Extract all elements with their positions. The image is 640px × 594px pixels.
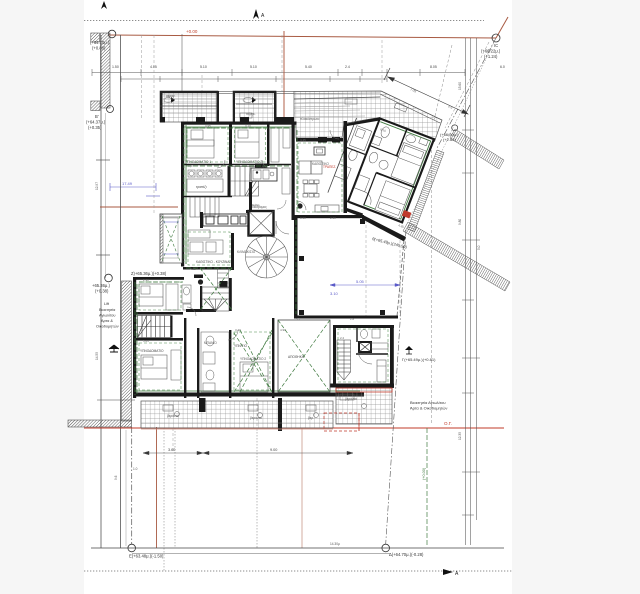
svg-text:5.2: 5.2 <box>296 317 301 321</box>
svg-text:ΑΠΟΘΗΚΗ: ΑΠΟΘΗΚΗ <box>288 355 305 359</box>
svg-text:4.05: 4.05 <box>150 65 157 69</box>
svg-text:Άρτα & Οικοδομητών: Άρτα & Οικοδομητών <box>410 406 447 411</box>
svg-text:ΚΑΘΙΣΤΙΚΟ - ΚΟΥΖΙΝΑ: ΚΑΘΙΣΤΙΚΟ - ΚΟΥΖΙΝΑ <box>196 260 230 264</box>
svg-text:15.60: 15.60 <box>458 82 462 90</box>
svg-text:Βιοκτησία Αγιωλίτου: Βιοκτησία Αγιωλίτου <box>410 400 446 405</box>
svg-text:Οικοδομητών: Οικοδομητών <box>96 325 119 329</box>
svg-text:2.90: 2.90 <box>143 278 149 282</box>
svg-text:17.49: 17.49 <box>122 181 133 186</box>
svg-text:3.10: 3.10 <box>330 291 339 296</box>
svg-text:Δ(+64.70μ.)(-0.28): Δ(+64.70μ.)(-0.28) <box>389 552 424 557</box>
svg-text:2.4: 2.4 <box>345 65 350 69</box>
svg-text:διάδρομος: διάδρομος <box>252 205 267 209</box>
svg-text:τραπέζι: τραπέζι <box>196 185 207 189</box>
svg-text:4.45: 4.45 <box>300 138 306 142</box>
svg-text:Lift: Lift <box>104 302 110 306</box>
svg-text:Γ(+65.49μ.)(+0.81): Γ(+65.49μ.)(+0.81) <box>402 357 436 362</box>
svg-text:2.2: 2.2 <box>340 336 345 340</box>
svg-text:ΥΠΝΟΔΩΜΑΤΙΟ 2: ΥΠΝΟΔΩΜΑΤΙΟ 2 <box>240 357 266 361</box>
svg-text:ΜΠΑΝΙΟ: ΜΠΑΝΙΟ <box>204 341 217 345</box>
svg-text:πλακόστρωτο: πλακόστρωτο <box>300 117 320 121</box>
svg-text:9.80: 9.80 <box>458 219 462 225</box>
svg-text:4.35: 4.35 <box>190 267 196 271</box>
svg-text:B': B' <box>95 114 99 119</box>
svg-text:4.90: 4.90 <box>280 328 286 332</box>
svg-text:Αγιωλίτου: Αγιωλίτου <box>99 314 115 318</box>
svg-text:(+0.35): (+0.35) <box>88 125 102 130</box>
svg-text:1.0: 1.0 <box>133 467 138 471</box>
svg-text:A: A <box>261 13 265 19</box>
svg-text:Βιοκτησία: Βιοκτησία <box>99 308 116 312</box>
svg-text:12.97: 12.97 <box>95 182 99 190</box>
svg-text:14.30μ: 14.30μ <box>330 542 340 546</box>
svg-text:3.60: 3.60 <box>168 448 175 452</box>
svg-text:(+0.00): (+0.00) <box>422 467 426 480</box>
svg-text:βερ.: βερ. <box>308 416 314 420</box>
svg-text:1.50: 1.50 <box>112 65 119 69</box>
svg-text:ΚΛΙΜΑΚ/ΣΙΟ: ΚΛΙΜΑΚ/ΣΙΟ <box>237 250 256 254</box>
svg-text:(+66/22μ.): (+66/22μ.) <box>481 49 501 54</box>
svg-text:3.95: 3.95 <box>205 124 211 128</box>
svg-text:3.10: 3.10 <box>245 124 251 128</box>
svg-text:Z)+65.36μ.)(+0.38): Z)+65.36μ.)(+0.38) <box>131 271 167 276</box>
svg-text:(+0.38): (+0.38) <box>95 289 109 294</box>
svg-text:6.0: 6.0 <box>500 65 505 69</box>
svg-text:4.35: 4.35 <box>398 223 405 229</box>
svg-text:14.55: 14.55 <box>95 352 99 360</box>
svg-text:E(+63.48μ.)(-1.50): E(+63.48μ.)(-1.50) <box>129 554 164 559</box>
svg-text:πέργκ.: πέργκ. <box>246 112 256 116</box>
svg-text:(+64.37μ.): (+64.37μ.) <box>86 120 106 125</box>
svg-text:8.05: 8.05 <box>430 65 437 69</box>
svg-text:αεραγ.: αεραγ. <box>166 94 176 98</box>
svg-text:5.10: 5.10 <box>250 65 257 69</box>
svg-text:3.65: 3.65 <box>143 339 149 343</box>
svg-text:12.35: 12.35 <box>458 432 462 440</box>
svg-text:+65.36μ.): +65.36μ.) <box>92 283 111 288</box>
svg-text:5.05: 5.05 <box>356 279 365 284</box>
svg-text:IC: IC <box>494 43 498 48</box>
svg-text:2.30: 2.30 <box>330 216 336 220</box>
svg-text:βεράντα: βεράντα <box>167 414 179 418</box>
svg-text:2.3: 2.3 <box>448 104 454 110</box>
svg-text:5.0: 5.0 <box>477 245 481 250</box>
svg-text:(+2.62): (+2.62) <box>443 137 456 142</box>
svg-text:βεράντα: βεράντα <box>250 416 262 420</box>
svg-text:Ο.Γ.: Ο.Γ. <box>444 421 452 426</box>
svg-text:ΥΠΝΟΔΩΜΑΤΙΟ: ΥΠΝΟΔΩΜΑΤΙΟ <box>140 349 164 353</box>
svg-text:ΥΠΝ/ΤΙΟ: ΥΠΝ/ΤΙΟ <box>234 344 247 348</box>
svg-text:Άρτα &: Άρτα & <box>101 319 113 323</box>
svg-text:ΚΑΘΙΣΤΙΚΟ: ΚΑΘΙΣΤΙΚΟ <box>312 162 329 166</box>
svg-text:0.90: 0.90 <box>300 216 306 220</box>
svg-text:7.05: 7.05 <box>410 87 418 93</box>
svg-text:5.10: 5.10 <box>200 65 207 69</box>
svg-text:+0.00: +0.00 <box>186 29 198 34</box>
svg-text:1.8: 1.8 <box>350 317 355 321</box>
svg-text:5.40: 5.40 <box>305 65 312 69</box>
svg-text:9.00: 9.00 <box>270 448 277 452</box>
svg-text:βεράντα: βεράντα <box>345 397 357 401</box>
svg-text:9.6: 9.6 <box>114 475 118 480</box>
svg-text:A: A <box>455 571 459 577</box>
